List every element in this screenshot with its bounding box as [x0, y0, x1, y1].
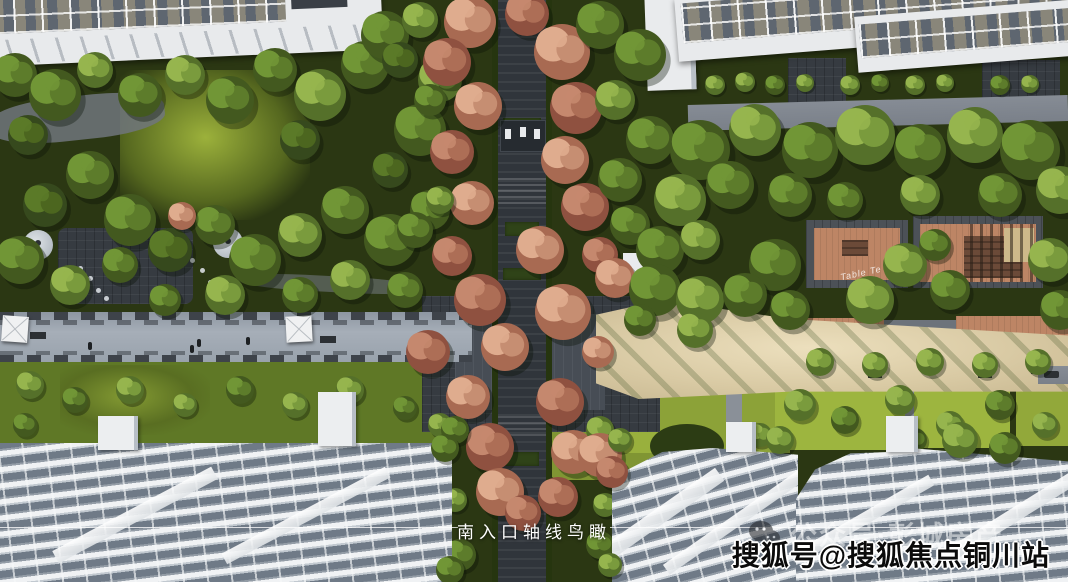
person-3	[197, 339, 201, 347]
bold-watermark-text: 搜狐号@搜狐焦点铜川站	[732, 534, 1050, 574]
roof-notch	[291, 0, 348, 9]
garden-path-2	[240, 271, 421, 296]
table-tennis-table	[842, 240, 868, 256]
caption-line-left	[0, 527, 458, 528]
plaza-canopy	[623, 253, 650, 273]
entry-tower-1	[98, 416, 138, 450]
aerial-render: Table Te	[0, 0, 1068, 582]
axis-pavilion	[500, 120, 546, 152]
sand-swath	[596, 296, 1068, 400]
amenity-deck-1: Table Te	[814, 228, 900, 280]
right-lawn-2	[912, 386, 1010, 448]
umbrella-1	[1, 315, 29, 343]
axis-path	[498, 0, 546, 582]
bench-2	[320, 336, 336, 343]
circular-pad-2	[213, 228, 243, 258]
roof-top-left	[0, 0, 383, 67]
entry-tower-3	[726, 422, 756, 452]
axis-steps	[498, 178, 546, 204]
amenity-deck-2	[920, 224, 1036, 282]
right-lawn-3	[1016, 388, 1068, 446]
person-4	[246, 337, 250, 345]
bench-1	[30, 332, 46, 339]
promenade	[0, 312, 472, 362]
umbrella-2	[285, 315, 312, 342]
entry-tower-2	[318, 392, 356, 446]
tree-planter-2	[868, 366, 882, 378]
tree-planter-4	[978, 366, 992, 378]
sunlit-lawn-mound	[120, 70, 310, 220]
corner-road	[1038, 366, 1068, 384]
person-2	[190, 345, 194, 353]
pergola-beams	[970, 224, 1036, 282]
upper-road	[688, 95, 1068, 131]
entry-tower-4	[886, 416, 918, 452]
person-1	[88, 342, 92, 350]
building-left	[0, 443, 452, 582]
axis-hedge-right	[546, 0, 552, 582]
tree-planter-3	[923, 362, 937, 374]
deck-label: Table Te	[839, 264, 882, 282]
circular-pad-1	[23, 230, 53, 260]
axis-steps-2	[498, 416, 546, 438]
car	[1044, 371, 1059, 378]
tree-planter-1	[812, 362, 826, 374]
caption-title: 南入口轴线鸟瞰	[457, 518, 611, 543]
paving-patch-1	[788, 58, 846, 104]
